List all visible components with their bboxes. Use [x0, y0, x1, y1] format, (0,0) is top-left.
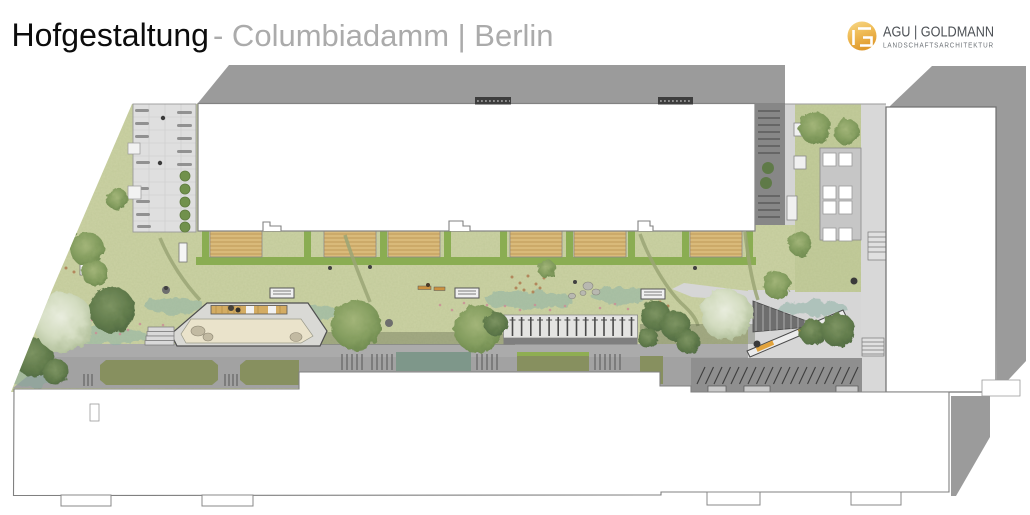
svg-text:- Columbiadamm | Berlin: - Columbiadamm | Berlin	[213, 18, 554, 53]
svg-text:Hofgestaltung: Hofgestaltung	[12, 17, 209, 53]
svg-text:AGU | GOLDMANN: AGU | GOLDMANN	[883, 25, 994, 41]
svg-text:LANDSCHAFTSARCHITEKTUR: LANDSCHAFTSARCHITEKTUR	[883, 41, 994, 50]
